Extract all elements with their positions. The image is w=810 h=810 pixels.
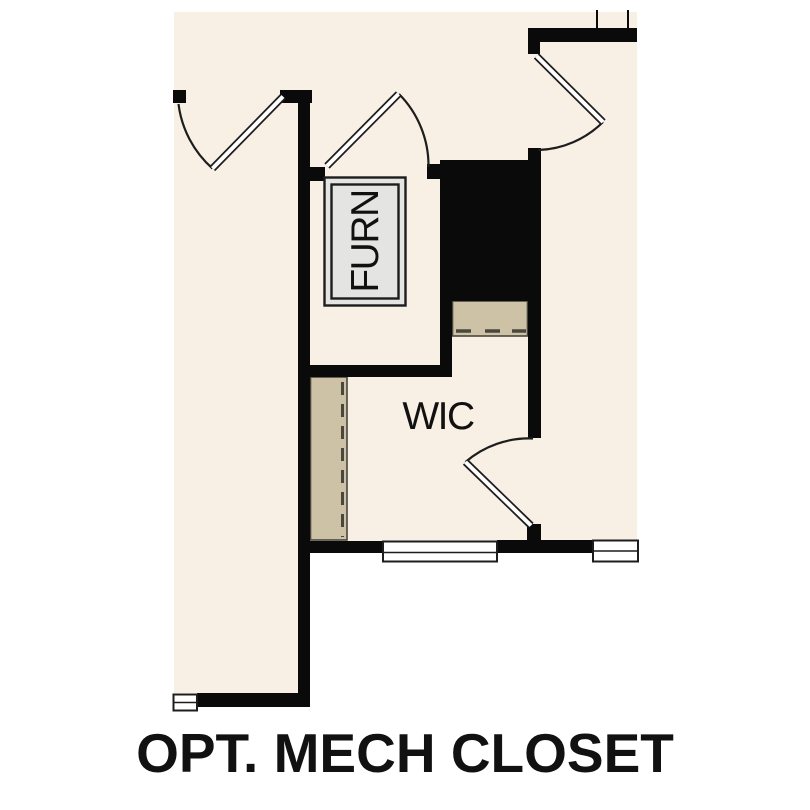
window-lower-right bbox=[593, 541, 638, 562]
wall-cut-mark-2 bbox=[627, 10, 629, 28]
furnace-room-bottom-wall bbox=[298, 365, 452, 377]
wic-bottom-wall-mid bbox=[497, 540, 593, 553]
hall-door-stub bbox=[173, 90, 186, 103]
hall-bottom-wall bbox=[197, 693, 310, 707]
wic-label: WIC bbox=[402, 395, 474, 438]
plan-caption: OPT. MECH CLOSET bbox=[136, 722, 674, 784]
window-lower-left-frame bbox=[383, 542, 497, 562]
furnace-label: FURN bbox=[344, 190, 387, 292]
furnace-door-hinge-stub bbox=[310, 167, 325, 181]
hall-right-wall bbox=[298, 90, 310, 707]
right-wall-upper bbox=[528, 148, 541, 438]
mech-closet-filled-mass bbox=[440, 160, 528, 301]
floorplan-image: FURN bbox=[0, 0, 810, 810]
floor-plan-svg: FURN bbox=[0, 0, 810, 810]
wall-cut-mark-bottom-left bbox=[174, 695, 198, 711]
furnace-unit: FURN bbox=[325, 178, 406, 306]
mech-closet-left-wall bbox=[440, 301, 452, 366]
top-right-wall bbox=[528, 28, 637, 42]
wall-cut-mark-1 bbox=[596, 10, 598, 28]
window-lower-left bbox=[383, 542, 497, 562]
floor-area bbox=[174, 12, 637, 693]
top-right-wall-tab bbox=[528, 28, 540, 54]
wic-bottom-wall-left bbox=[298, 541, 383, 553]
